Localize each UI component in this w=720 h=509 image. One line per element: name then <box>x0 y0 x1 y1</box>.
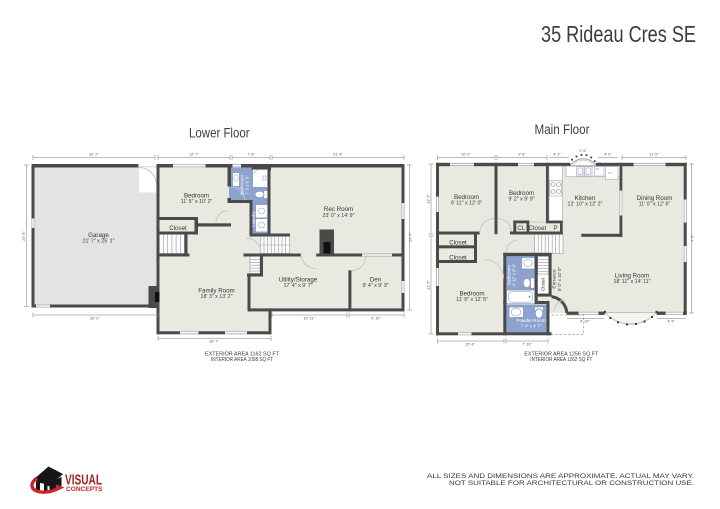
svg-text:7' 0 x 9' 9": 7' 0 x 9' 9" <box>245 175 250 195</box>
svg-text:Lower Floor: Lower Floor <box>189 125 250 141</box>
svg-text:18' 3" x 13' 2": 18' 3" x 13' 2" <box>201 294 233 300</box>
svg-text:P: P <box>553 225 557 232</box>
svg-text:9' 11" x 12' 0": 9' 11" x 12' 0" <box>451 201 483 207</box>
svg-text:CONCEPTS: CONCEPTS <box>66 487 103 493</box>
svg-text:23' 0" x 14' 9": 23' 0" x 14' 9" <box>323 213 355 219</box>
svg-text:4' 11" x 8' 9": 4' 11" x 8' 9" <box>512 263 517 286</box>
svg-text:12' 0": 12' 0" <box>426 194 431 204</box>
svg-text:18' 7": 18' 7" <box>209 339 219 344</box>
svg-text:12' 7": 12' 7" <box>189 152 199 157</box>
svg-text:ALL SIZES AND DIMENSIONS ARE A: ALL SIZES AND DIMENSIONS ARE APPROXIMATE… <box>427 473 694 480</box>
svg-text:32' 2": 32' 2" <box>90 316 100 321</box>
svg-text:9' 8": 9' 8" <box>518 152 526 157</box>
svg-text:10' 2": 10' 2" <box>461 152 471 157</box>
svg-text:9' 2" x 9' 9": 9' 2" x 9' 9" <box>508 197 534 203</box>
svg-text:13' 11": 13' 11" <box>303 316 315 321</box>
svg-text:9' 10": 9' 10" <box>371 316 381 321</box>
svg-text:23' 4": 23' 4" <box>333 152 343 157</box>
svg-text:NOT SUITABLE FOR ARCHITECTURAL: NOT SUITABLE FOR ARCHITECTURAL OR CONSTR… <box>449 480 694 487</box>
svg-text:Main Floor: Main Floor <box>535 121 590 137</box>
svg-text:11' 5": 11' 5" <box>649 152 659 157</box>
svg-text:Closet: Closet <box>529 225 547 232</box>
svg-text:7' 4" x 4' 7": 7' 4" x 4' 7" <box>521 323 542 328</box>
svg-text:17' 4" x 9' 7": 17' 4" x 9' 7" <box>283 283 312 289</box>
svg-text:18' 11" x 14' 11": 18' 11" x 14' 11" <box>613 279 650 285</box>
svg-text:32' 2": 32' 2" <box>89 152 99 157</box>
svg-text:7' 10": 7' 10" <box>522 342 532 347</box>
svg-text:9' 4" x 9' 3": 9' 4" x 9' 3" <box>362 283 388 289</box>
svg-text:7' 6": 7' 6" <box>247 152 255 157</box>
svg-text:11' 5" x 10' 2": 11' 5" x 10' 2" <box>181 199 213 205</box>
svg-text:11' 0" x 12' 6": 11' 0" x 12' 6" <box>639 201 671 207</box>
svg-text:Closet: Closet <box>169 225 187 232</box>
svg-text:12' 10" x 12' 2": 12' 10" x 12' 2" <box>568 201 603 207</box>
svg-text:2' 6": 2' 6" <box>579 148 587 153</box>
svg-text:25' 9": 25' 9" <box>21 231 26 241</box>
svg-text:4' 9": 4' 9" <box>667 319 675 324</box>
svg-text:CL: CL <box>517 225 525 232</box>
svg-text:Laundry: Laundry <box>251 211 256 227</box>
svg-text:12' 5": 12' 5" <box>426 280 431 290</box>
svg-text:INTERIOR AREA 1262 SQ FT: INTERIOR AREA 1262 SQ FT <box>530 357 592 363</box>
svg-text:24' 4": 24' 4" <box>408 232 413 242</box>
svg-text:15' 4": 15' 4" <box>465 342 475 347</box>
svg-text:Closet: Closet <box>541 277 546 291</box>
svg-text:21' 7" x 25' 1": 21' 7" x 25' 1" <box>83 239 115 245</box>
svg-text:VISUAL: VISUAL <box>65 472 102 489</box>
svg-text:4' 3": 4' 3" <box>553 152 561 157</box>
svg-text:Powder Room: Powder Room <box>516 318 545 323</box>
svg-text:35 Rideau Cres SE: 35 Rideau Cres SE <box>541 21 696 47</box>
svg-text:5' 0" x 10' 0": 5' 0" x 10' 0" <box>557 267 562 292</box>
svg-text:INTERIOR AREA 1098 SQ FT: INTERIOR AREA 1098 SQ FT <box>211 357 273 363</box>
svg-text:4' 5": 4' 5" <box>604 152 612 157</box>
svg-text:4' 10": 4' 10" <box>580 319 590 324</box>
svg-text:4' 6": 4' 6" <box>690 234 695 242</box>
svg-text:11' 9" x 12' 5": 11' 9" x 12' 5" <box>456 297 488 303</box>
